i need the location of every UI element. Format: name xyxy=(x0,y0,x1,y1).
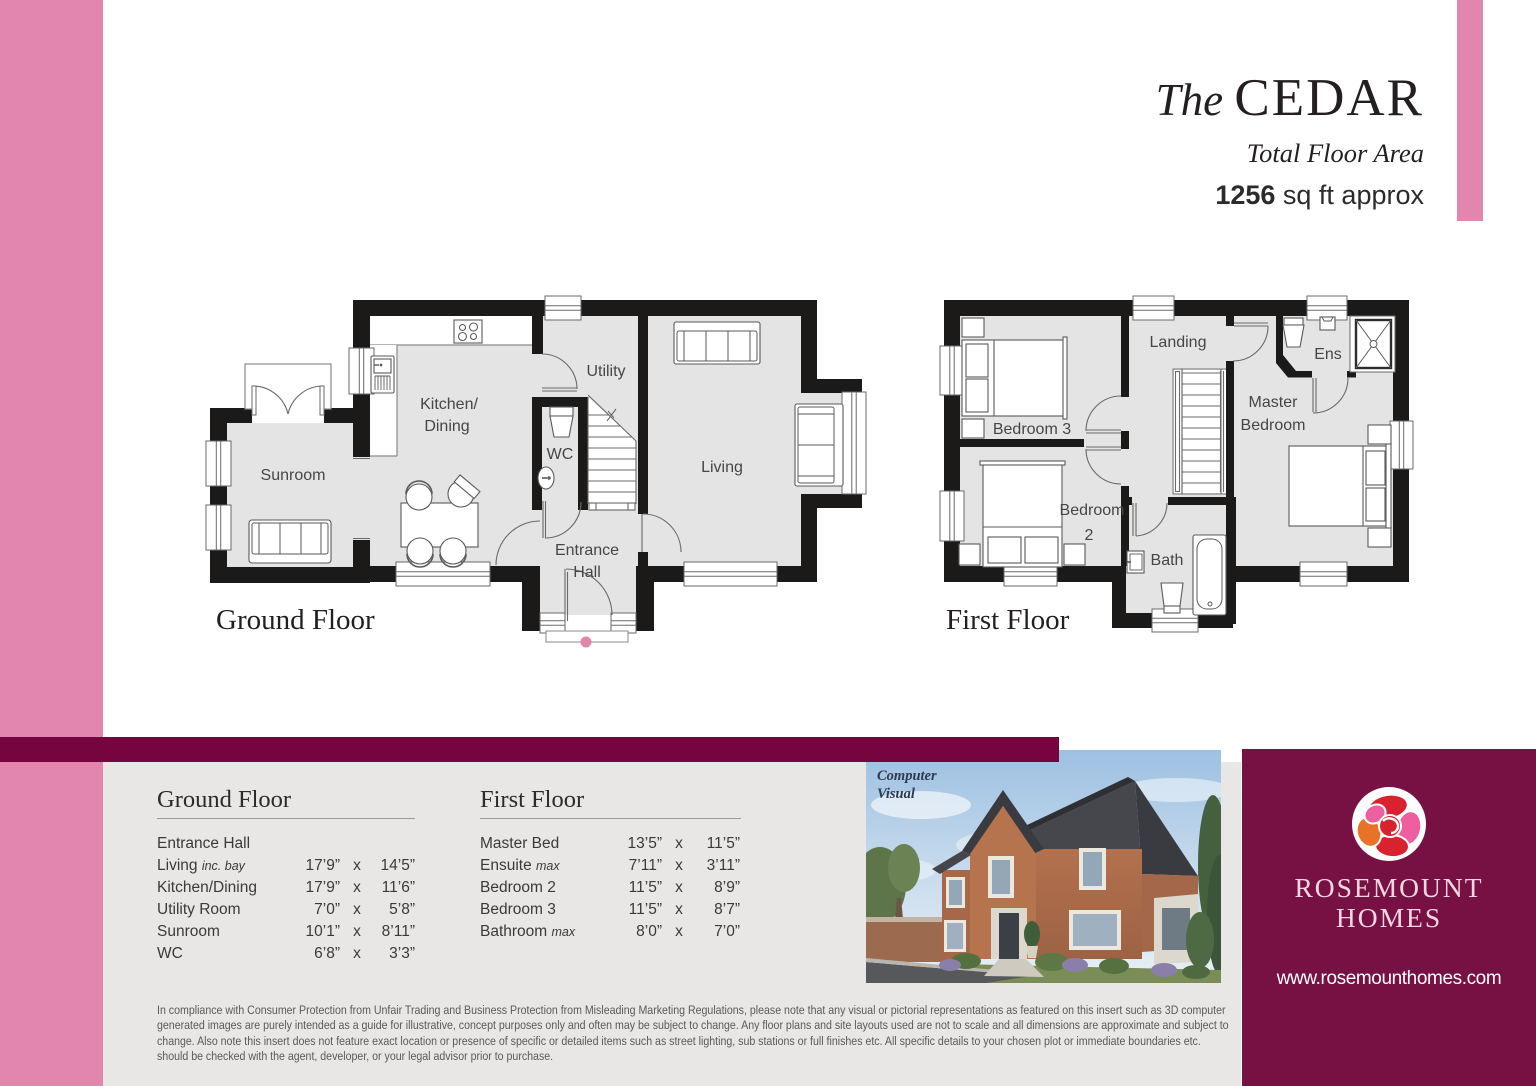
svg-text:Sunroom: Sunroom xyxy=(261,467,326,484)
svg-text:www.rosemounthomes.com: www.rosemounthomes.com xyxy=(1276,968,1502,989)
svg-text:Master: Master xyxy=(1249,394,1299,411)
svg-text:Computer: Computer xyxy=(877,768,937,784)
svg-text:Dining: Dining xyxy=(424,418,469,435)
svg-text:Ground Floor: Ground Floor xyxy=(216,604,375,636)
svg-text:2: 2 xyxy=(1085,527,1094,544)
svg-text:Living: Living xyxy=(701,459,743,476)
svg-text:WC: WC xyxy=(547,446,574,463)
svg-text:Kitchen/: Kitchen/ xyxy=(420,396,478,413)
svg-text:Bedroom: Bedroom xyxy=(1060,502,1125,519)
svg-text:Hall: Hall xyxy=(573,564,601,581)
svg-text:ROSEMOUNT: ROSEMOUNT xyxy=(1294,872,1483,903)
svg-text:Bedroom: Bedroom xyxy=(1241,417,1306,434)
svg-text:Utility: Utility xyxy=(586,363,625,380)
svg-text:Bedroom 3: Bedroom 3 xyxy=(993,421,1071,438)
svg-text:Entrance: Entrance xyxy=(555,542,619,559)
svg-text:First Floor: First Floor xyxy=(946,604,1070,636)
svg-text:Ens: Ens xyxy=(1314,346,1342,363)
svg-text:Landing: Landing xyxy=(1150,334,1207,351)
svg-text:Bath: Bath xyxy=(1151,552,1184,569)
svg-text:Visual: Visual xyxy=(877,786,915,802)
svg-text:HOMES: HOMES xyxy=(1336,902,1442,933)
